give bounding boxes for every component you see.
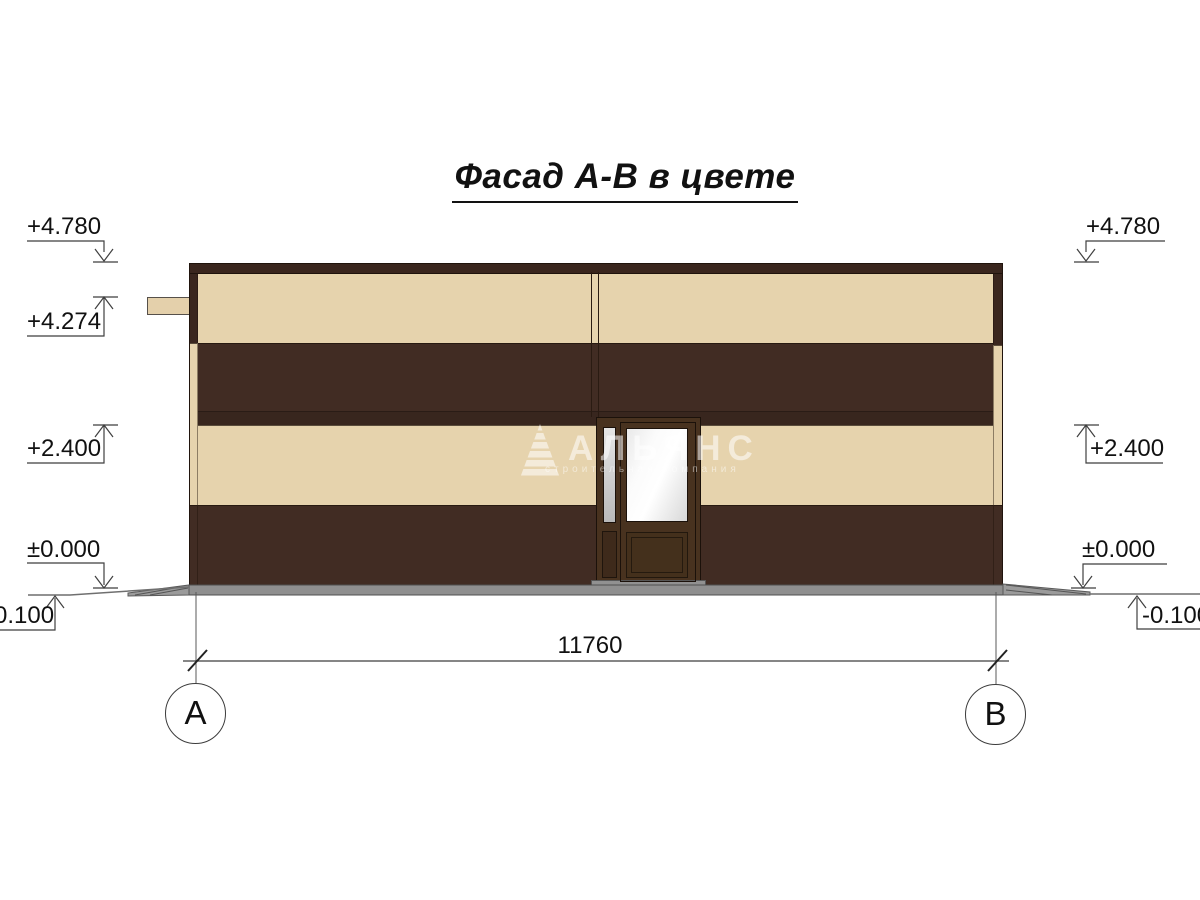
drawing-title: Фасад А-В в цвете bbox=[25, 157, 1200, 203]
apron-left bbox=[128, 585, 189, 596]
overall-dimension-value: 11760 bbox=[538, 632, 642, 660]
elevation-mark-right-2400: +2.400 bbox=[1090, 436, 1164, 462]
elevation-mark-left-m0100: -0.100 bbox=[0, 603, 54, 629]
door-sidelight-glass bbox=[603, 427, 616, 523]
apron-right bbox=[1003, 584, 1090, 595]
elevation-mark-right-4780: +4.780 bbox=[1086, 214, 1160, 240]
elevation-mark-right-0000: ±0.000 bbox=[1082, 537, 1155, 563]
axis-bubble-a: А bbox=[165, 683, 226, 744]
elevation-mark-left-4274: +4.274 bbox=[27, 309, 101, 335]
door-bottom-panel-inset bbox=[631, 537, 683, 573]
elevation-mark-left-4780: +4.780 bbox=[27, 214, 101, 240]
door-glass bbox=[626, 428, 688, 522]
drawing-title-text: Фасад А-В в цвете bbox=[452, 157, 799, 203]
elevation-mark-right-m0100: -0.100 bbox=[1142, 603, 1200, 629]
axis-label-b: В bbox=[984, 695, 1006, 732]
ground-line-left bbox=[28, 587, 189, 595]
axis-bubble-b: В bbox=[965, 684, 1026, 745]
door-sidelight-panel bbox=[602, 531, 617, 578]
axis-label-a: А bbox=[184, 694, 206, 731]
elevation-mark-left-2400: +2.400 bbox=[27, 436, 101, 462]
dimension-tick-b bbox=[988, 650, 1007, 671]
elevation-mark-left-0000: ±0.000 bbox=[27, 537, 100, 563]
dimension-tick-a bbox=[188, 650, 207, 671]
facade-drawing-canvas: Фасад А-В в цвете АЛЬЯНС строительна bbox=[0, 0, 1200, 900]
plinth bbox=[189, 585, 1003, 595]
door-bottom-panel bbox=[626, 532, 688, 578]
wall-pipe-outlet bbox=[147, 297, 190, 315]
panel-seam-right-line bbox=[598, 272, 599, 417]
panel-seam-left-line bbox=[591, 272, 592, 417]
